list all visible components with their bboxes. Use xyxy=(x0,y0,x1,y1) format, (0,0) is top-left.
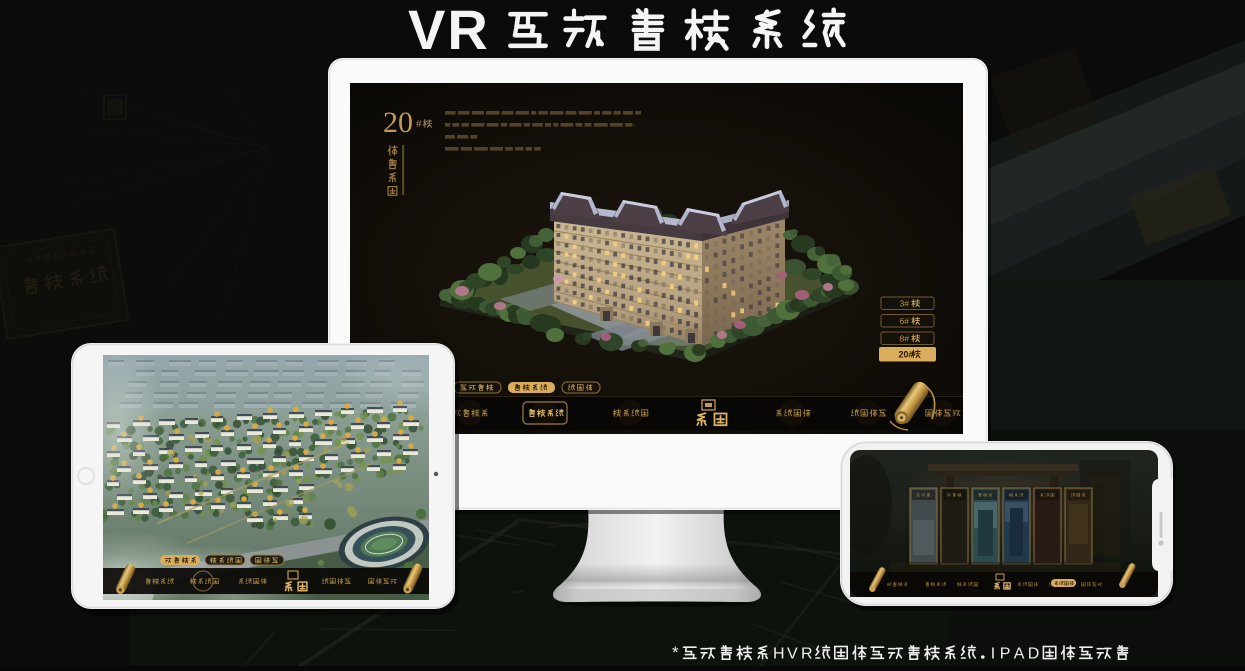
svg-text:H: H xyxy=(773,646,785,663)
svg-text:D: D xyxy=(1028,646,1040,663)
svg-text:#: # xyxy=(416,118,422,130)
svg-text:20#: 20# xyxy=(899,350,914,360)
svg-text:A: A xyxy=(1014,646,1025,663)
svg-text:*: * xyxy=(672,643,679,662)
svg-text:3#: 3# xyxy=(900,299,910,309)
svg-text:R: R xyxy=(801,646,813,663)
svg-text:8#: 8# xyxy=(900,334,910,344)
svg-text:P: P xyxy=(1000,646,1011,663)
svg-text:20: 20 xyxy=(383,106,413,139)
svg-text:6#: 6# xyxy=(900,316,910,326)
svg-text:I: I xyxy=(991,646,995,663)
svg-text:VR: VR xyxy=(408,0,490,61)
svg-text:V: V xyxy=(787,646,798,663)
